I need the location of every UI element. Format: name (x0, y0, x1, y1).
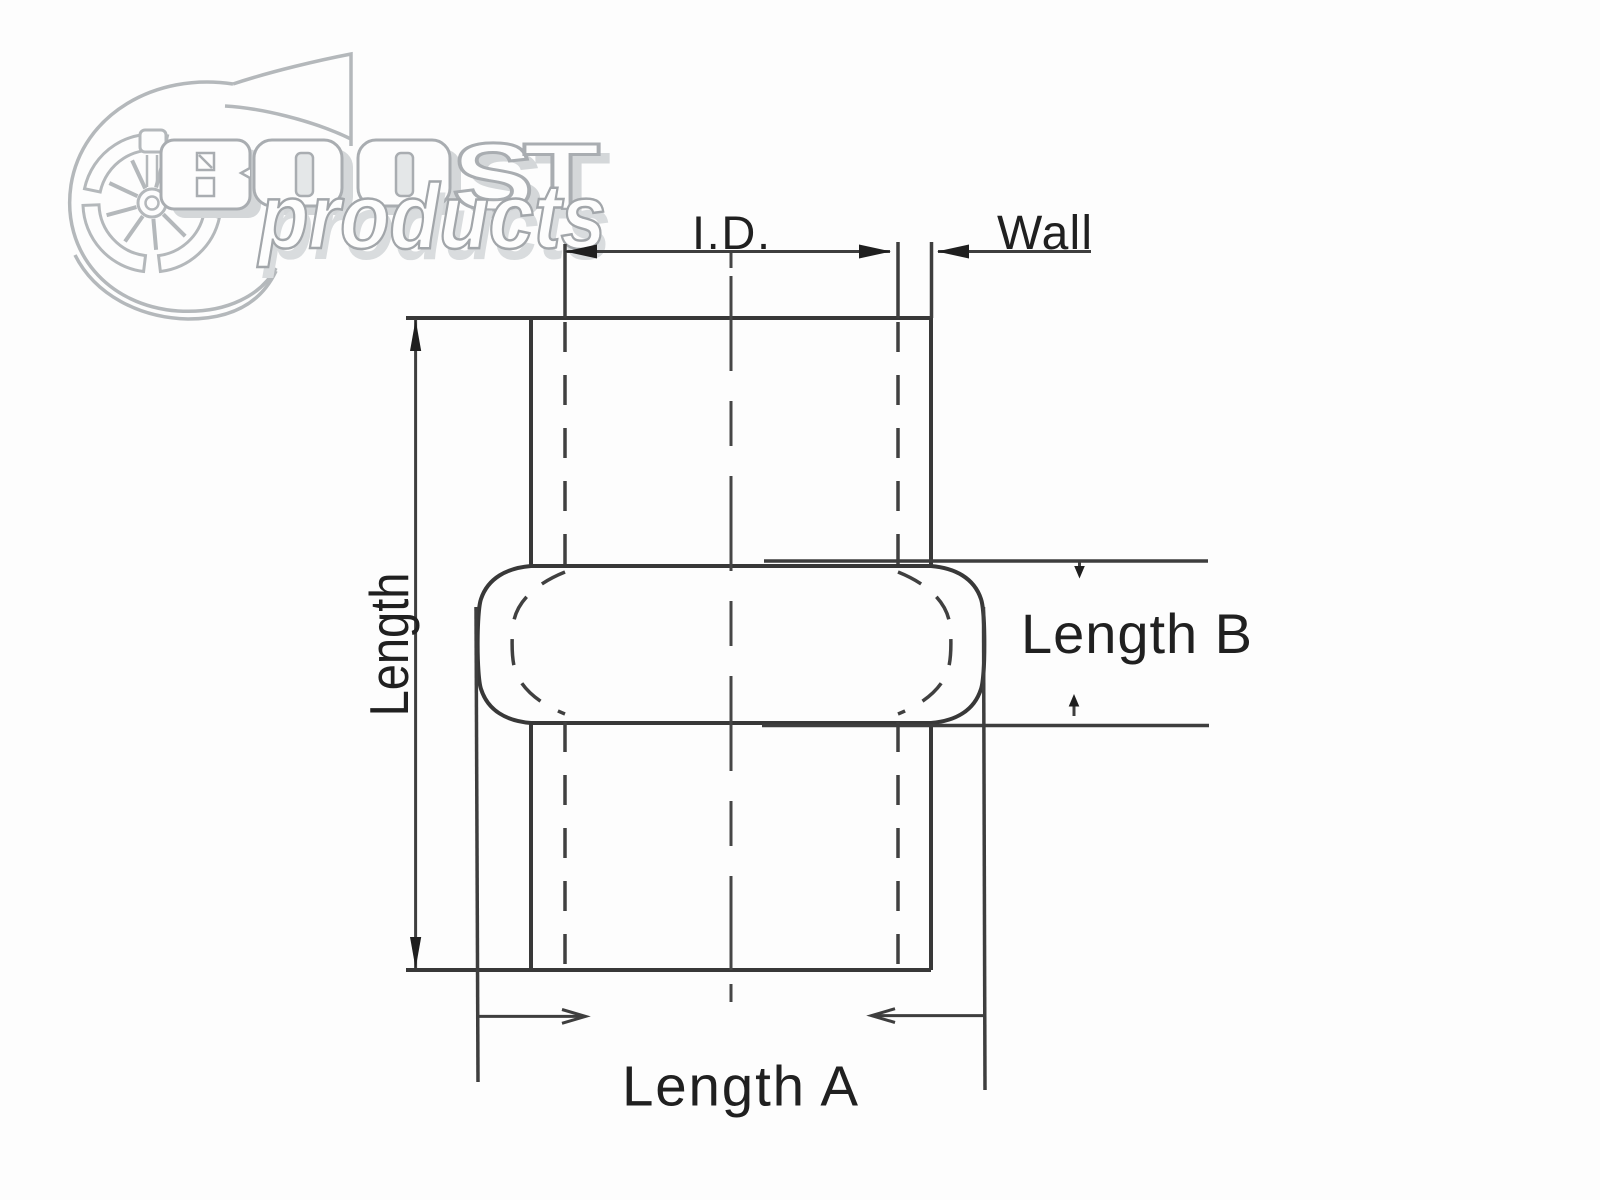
svg-text:products: products (256, 166, 606, 268)
svg-text:Length A: Length A (622, 1055, 858, 1118)
svg-text:Wall: Wall (997, 207, 1092, 260)
svg-text:Length: Length (359, 573, 420, 717)
svg-text:Length B: Length B (1021, 602, 1252, 665)
svg-text:I.D.: I.D. (692, 206, 770, 259)
